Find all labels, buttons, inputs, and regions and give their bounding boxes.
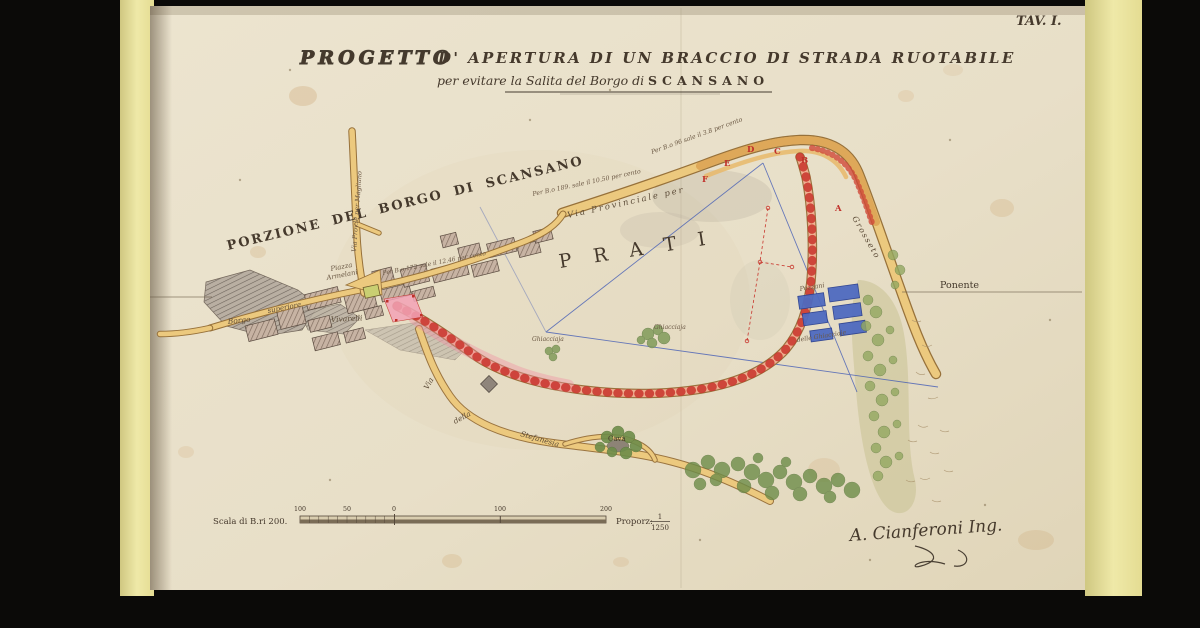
- subtitle-place: SCANSANO: [648, 73, 769, 88]
- point-e: E: [724, 159, 731, 169]
- scale-tick-1: 50: [343, 506, 351, 513]
- label-ponente: Ponente: [940, 280, 979, 291]
- scale-tick-2: 0: [392, 506, 396, 513]
- title-word-progetto: PROGETTO: [299, 47, 454, 69]
- subtitle-prefix: per evitare la Salita del Borgo di: [437, 73, 644, 88]
- point-f: F: [702, 175, 708, 185]
- point-c: C: [774, 147, 781, 157]
- point-a: A: [834, 204, 842, 214]
- point-d: D: [747, 145, 755, 155]
- label-cava: Cava: [608, 435, 626, 443]
- proporz-label: Proporz:: [616, 517, 653, 527]
- scale-tick-0: 100: [294, 506, 306, 513]
- scale-tick-4: 200: [600, 506, 612, 513]
- scale-tick-3: 100: [494, 506, 506, 513]
- label-ghiacciaja-2: Ghiacciaja: [654, 324, 686, 331]
- point-b: B: [801, 156, 808, 166]
- book-page-edge-left: [120, 0, 154, 596]
- label-vivarelli: Vivarelli: [331, 313, 364, 324]
- ratio-numerator: 1: [658, 513, 662, 521]
- ratio-denominator: 1250: [651, 524, 669, 532]
- photographed-map-plate: TAV. I. PROGETTO D' APERTURA DI UN BRACC…: [0, 0, 1200, 628]
- book-page-edge-right: [1085, 0, 1142, 596]
- plate-label: TAV. I.: [1016, 14, 1062, 29]
- scale-label: Scala di B.ri 200.: [213, 517, 287, 527]
- label-ghiacciaja-1: Ghiacciaja: [532, 336, 564, 343]
- title-rest: D' APERTURA DI UN BRACCIO DI STRADA RUOT…: [437, 49, 1016, 67]
- map-svg: TAV. I. PROGETTO D' APERTURA DI UN BRACC…: [0, 0, 1200, 628]
